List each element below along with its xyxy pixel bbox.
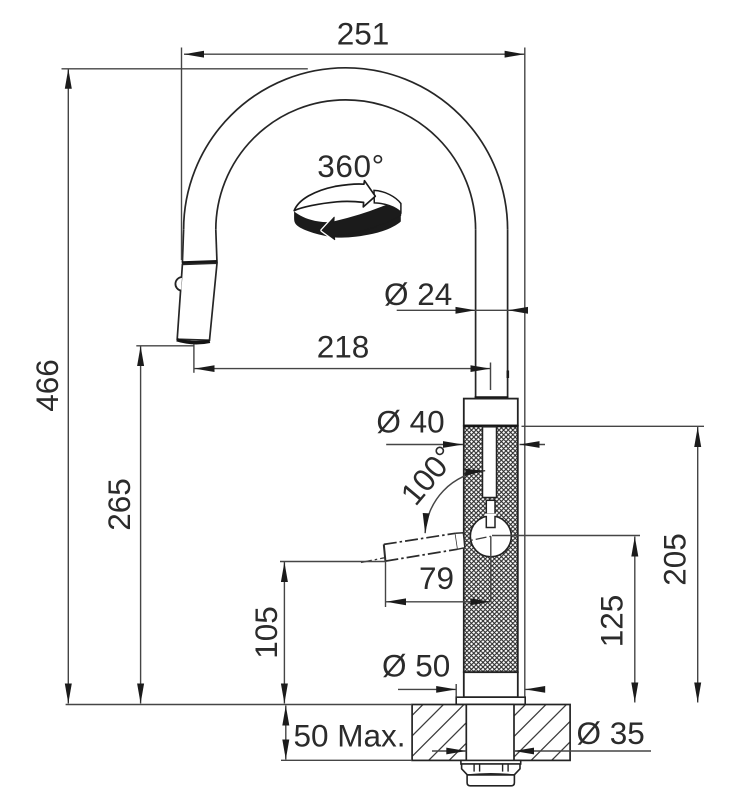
svg-text:265: 265 (101, 478, 137, 531)
svg-text:Ø 50: Ø 50 (382, 648, 450, 684)
svg-text:466: 466 (29, 359, 65, 412)
svg-text:Ø 35: Ø 35 (577, 715, 645, 751)
svg-text:79: 79 (419, 560, 454, 596)
svg-text:105: 105 (248, 606, 284, 659)
svg-text:Ø 40: Ø 40 (376, 404, 444, 440)
svg-text:50 Max.: 50 Max. (294, 718, 406, 754)
svg-text:125: 125 (594, 595, 630, 648)
svg-text:360°: 360° (317, 148, 385, 184)
svg-text:218: 218 (317, 329, 370, 365)
svg-text:Ø 24: Ø 24 (384, 276, 452, 312)
svg-text:205: 205 (657, 533, 693, 586)
svg-text:251: 251 (337, 16, 390, 52)
